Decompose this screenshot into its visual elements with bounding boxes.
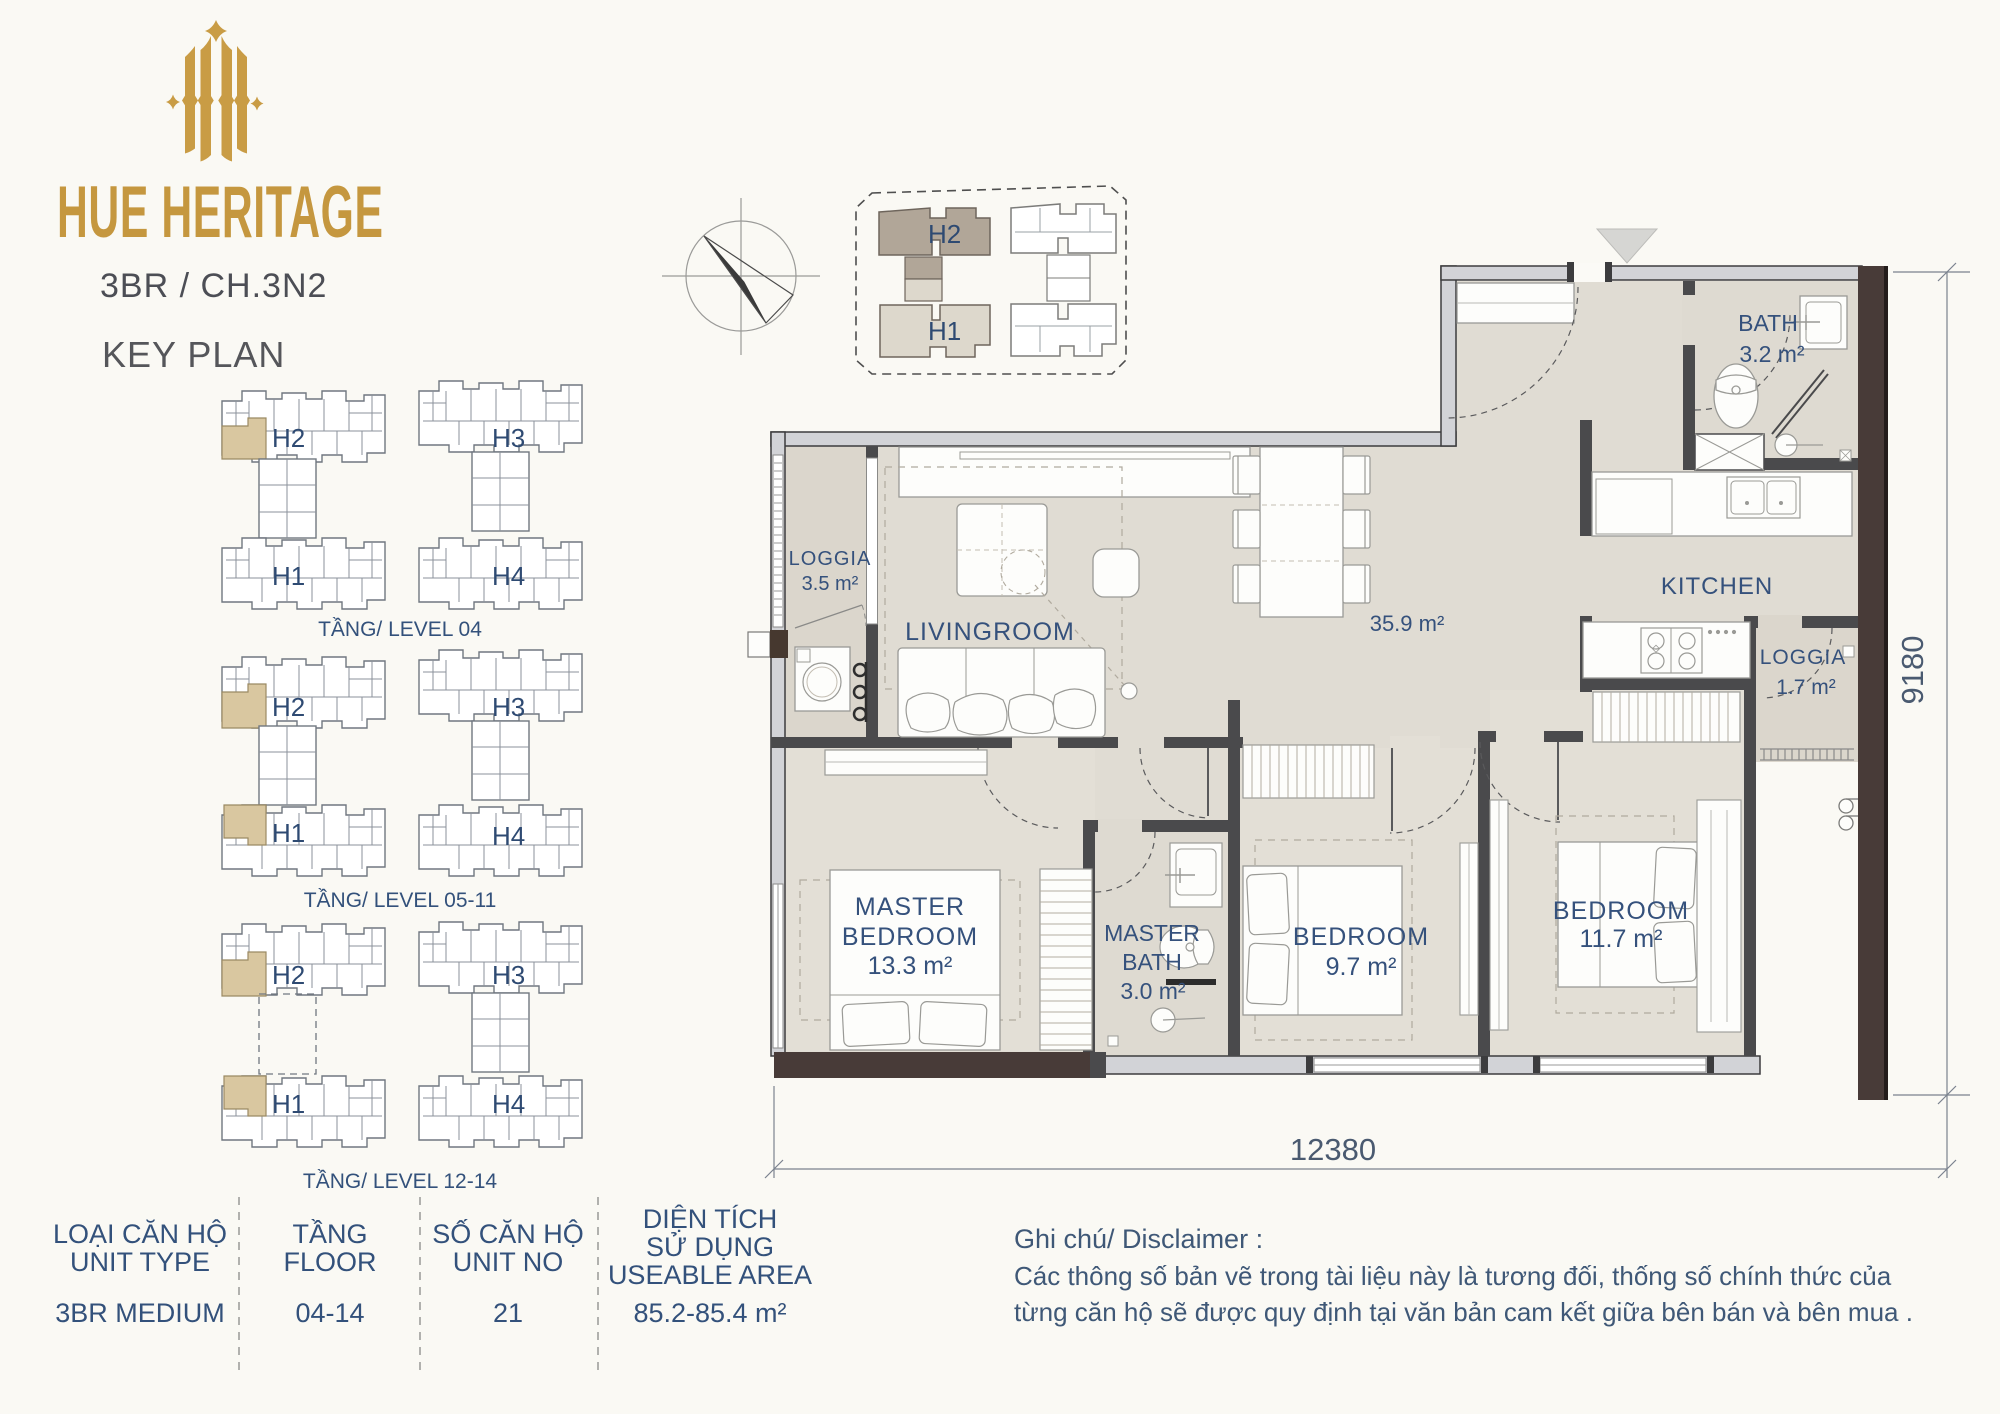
svg-text:BEDROOM: BEDROOM — [1553, 897, 1689, 925]
svg-text:Ghi chú/ Disclaimer :: Ghi chú/ Disclaimer : — [1014, 1224, 1263, 1254]
svg-text:1.7 m²: 1.7 m² — [1776, 676, 1836, 699]
svg-text:Các thông số bản vẽ trong tài: Các thông số bản vẽ trong tài liệu này l… — [1014, 1261, 1892, 1291]
svg-text:UNIT NO: UNIT NO — [453, 1247, 564, 1277]
svg-text:H1: H1 — [272, 1089, 305, 1119]
svg-text:LOGGIA: LOGGIA — [1760, 646, 1847, 669]
svg-text:MASTER: MASTER — [1104, 920, 1200, 946]
svg-text:11.7 m²: 11.7 m² — [1580, 925, 1663, 953]
svg-text:KITCHEN: KITCHEN — [1661, 573, 1773, 600]
svg-text:85.2-85.4 m²: 85.2-85.4 m² — [633, 1298, 786, 1328]
svg-text:H2: H2 — [272, 692, 305, 722]
svg-text:H2: H2 — [928, 219, 961, 249]
svg-text:H2: H2 — [272, 960, 305, 990]
svg-text:TẦNG: TẦNG — [292, 1218, 367, 1249]
svg-text:BATH: BATH — [1738, 310, 1798, 336]
svg-text:13.3 m²: 13.3 m² — [868, 952, 953, 980]
svg-text:04-14: 04-14 — [295, 1298, 364, 1328]
svg-text:BEDROOM: BEDROOM — [1293, 923, 1429, 951]
svg-text:H3: H3 — [492, 423, 525, 453]
svg-text:H4: H4 — [492, 1089, 525, 1119]
svg-text:SỐ CĂN HỘ: SỐ CĂN HỘ — [432, 1217, 584, 1249]
svg-text:từng căn hộ sẽ được quy định t: từng căn hộ sẽ được quy định tại văn bản… — [1014, 1297, 1913, 1327]
svg-text:TẦNG/ LEVEL 12-14: TẦNG/ LEVEL 12-14 — [303, 1170, 497, 1193]
svg-text:HUE HERITAGE: HUE HERITAGE — [57, 171, 384, 253]
svg-text:H3: H3 — [492, 692, 525, 722]
svg-text:KEY PLAN: KEY PLAN — [102, 334, 285, 375]
svg-text:FLOOR: FLOOR — [283, 1247, 376, 1277]
svg-text:9180: 9180 — [1895, 636, 1930, 705]
svg-text:TẦNG/ LEVEL 04: TẦNG/ LEVEL 04 — [318, 618, 482, 641]
svg-text:H3: H3 — [492, 960, 525, 990]
svg-text:3BR MEDIUM: 3BR MEDIUM — [55, 1298, 225, 1328]
svg-text:H2: H2 — [272, 423, 305, 453]
svg-text:UNIT TYPE: UNIT TYPE — [70, 1247, 210, 1277]
svg-text:DIỆN TÍCH: DIỆN TÍCH — [643, 1203, 778, 1234]
svg-text:9.7 m²: 9.7 m² — [1326, 953, 1397, 981]
svg-text:3.5 m²: 3.5 m² — [802, 573, 859, 595]
svg-text:LOẠI CĂN HỘ: LOẠI CĂN HỘ — [53, 1218, 227, 1249]
svg-text:H1: H1 — [272, 818, 305, 848]
svg-text:21: 21 — [493, 1298, 523, 1328]
svg-text:BEDROOM: BEDROOM — [842, 923, 978, 951]
svg-text:H1: H1 — [272, 561, 305, 591]
svg-text:3.0 m²: 3.0 m² — [1120, 978, 1186, 1004]
svg-text:TẦNG/ LEVEL 05-11: TẦNG/ LEVEL 05-11 — [304, 889, 497, 912]
svg-text:H1: H1 — [928, 316, 961, 346]
svg-text:LIVINGROOM: LIVINGROOM — [905, 618, 1075, 646]
svg-text:3.2 m²: 3.2 m² — [1739, 341, 1805, 367]
svg-text:MASTER: MASTER — [855, 893, 965, 921]
svg-text:H4: H4 — [492, 821, 525, 851]
svg-text:USEABLE AREA: USEABLE AREA — [608, 1260, 812, 1290]
svg-text:SỬ DỤNG: SỬ DỤNG — [646, 1230, 774, 1262]
svg-text:35.9 m²: 35.9 m² — [1370, 611, 1445, 636]
svg-text:12380: 12380 — [1290, 1132, 1376, 1167]
svg-text:LOGGIA: LOGGIA — [789, 548, 872, 570]
svg-text:H4: H4 — [492, 561, 525, 591]
svg-text:BATH: BATH — [1122, 949, 1182, 975]
svg-text:3BR / CH.3N2: 3BR / CH.3N2 — [100, 267, 327, 305]
